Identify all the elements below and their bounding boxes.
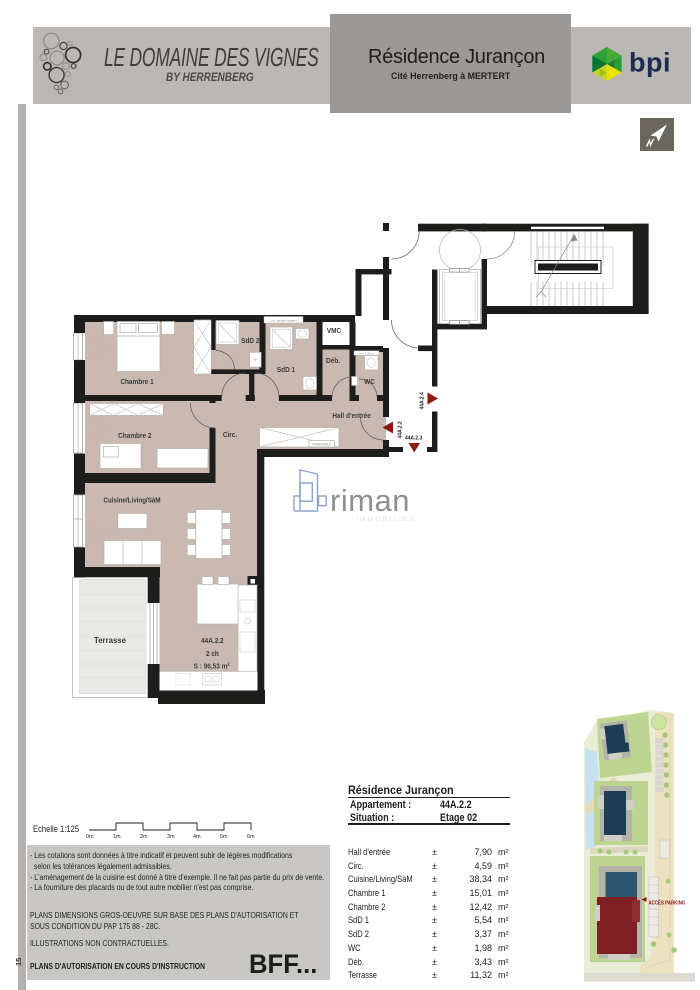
svg-text:PRINCIPALE: PRINCIPALE [312,443,331,447]
svg-text:4m: 4m [193,834,201,840]
svg-text:44A.2.2: 44A.2.2 [397,421,403,438]
svg-text:1m: 1m [113,834,121,840]
svg-text:Circ.: Circ. [223,432,237,440]
svg-text:WC: WC [364,379,375,387]
svg-text:Chambre 2: Chambre 2 [118,433,151,441]
svg-text:riman: riman [330,483,410,518]
svg-text:3m: 3m [167,834,175,840]
svg-text:2 ch: 2 ch [206,651,219,659]
svg-text:0m: 0m [86,834,94,840]
svg-text:S : 96,53 m²: S : 96,53 m² [194,663,230,671]
svg-text:2m: 2m [140,834,148,840]
svg-text:ht = 1,20 m: ht = 1,20 m [359,351,375,355]
svg-text:44A.2.2: 44A.2.2 [201,638,224,646]
svg-text:SdD 1: SdD 1 [277,367,295,375]
svg-text:44A.2.4: 44A.2.4 [419,392,425,409]
svg-text:Déb.: Déb. [326,358,340,366]
svg-text:SdD 2: SdD 2 [241,338,259,346]
svg-text:6m: 6m [247,834,255,840]
svg-text:VMC: VMC [327,328,341,336]
svg-text:Terrasse: Terrasse [94,636,127,645]
svg-text:1m : double hauteur: 1m : double hauteur [270,318,297,322]
svg-text:5m: 5m [220,834,228,840]
svg-text:IMMOBILIEN: IMMOBILIEN [356,516,416,523]
svg-text:Chambre 1: Chambre 1 [120,379,153,387]
svg-text:44A.2.3: 44A.2.3 [405,435,422,441]
svg-text:Cuisine/Living/SàM: Cuisine/Living/SàM [103,497,160,505]
svg-text:Hall d'entrée: Hall d'entrée [332,413,371,421]
